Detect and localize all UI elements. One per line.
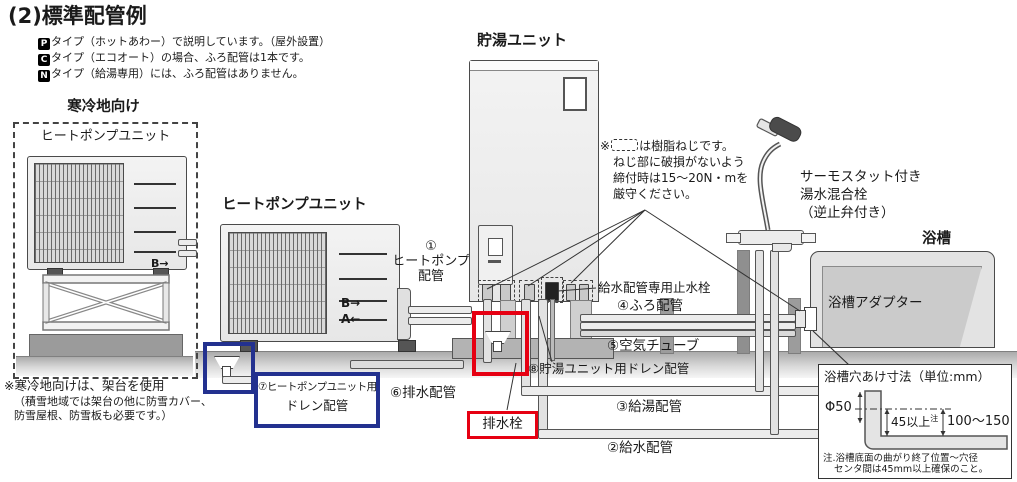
vent-slit <box>134 251 176 253</box>
pipe2-label: ②給水配管 <box>607 441 673 457</box>
pipe6-label: ⑥排水配管 <box>390 386 456 402</box>
cold-pipe-a <box>178 250 197 257</box>
unit-foot <box>398 340 416 352</box>
highlight-pipe7-blue-box: ⑦ヒートポンプユニット用 ドレン配管 <box>254 372 380 428</box>
mixer-label-line1: サーモスタット付き <box>800 170 922 186</box>
bathtub-title: 浴槽 <box>922 231 951 248</box>
mixer-knob-right <box>801 233 816 243</box>
resin-note-line4: 厳守ください。 <box>600 186 748 202</box>
mixer-hot-riser <box>755 250 764 392</box>
tank-drain-hose <box>550 299 555 361</box>
pipe8-label: ⑧貯湯ユニット用ドレン配管 <box>528 362 689 376</box>
type-note-n: Nタイプ（給湯専用）には、ふろ配管はありません。 <box>38 66 330 82</box>
heatpump-pipe-upper <box>408 306 472 314</box>
dim-100-150-label: 100～150 <box>947 415 1010 430</box>
drain-plug-label: 排水栓 <box>470 417 535 433</box>
pipe3-label: ③給湯配管 <box>616 400 682 416</box>
tank-top-band <box>470 61 598 71</box>
n-type-badge: N <box>38 70 50 82</box>
cold-region-box: ヒートポンプユニット B→ A← <box>13 122 198 379</box>
port-b-label: B→ <box>341 297 360 311</box>
vent-slit <box>339 253 387 255</box>
resin-note: ※は樹脂ねじです。 ねじ部に破損がないよう 締付時は15～20N・mを 厳守くだ… <box>600 138 748 202</box>
cold-note-1: ※寒冷地向けは、架台を使用 <box>4 379 164 393</box>
type-note-p: Pタイプ（ホットあわー）で説明しています。（屋外設置） <box>38 34 330 50</box>
pipe5-label: ⑤空気チューブ <box>607 339 699 355</box>
drain-pipe-6 <box>350 360 464 369</box>
tank-vent <box>563 77 587 111</box>
hole-dimension-box: 浴槽穴あけ寸法（単位:mm） Φ50 45以上注 100～150 注.浴槽底面の… <box>818 364 1012 479</box>
mixer-post <box>737 250 750 354</box>
resin-screw-box <box>563 280 593 302</box>
cold-unit-label: ヒートポンプユニット <box>15 130 196 145</box>
heatpump-pipe-lower <box>408 317 472 325</box>
highlight-drain-plug-red-box: 排水栓 <box>467 411 538 439</box>
pipe7-label-line1: ⑦ヒートポンプユニット用 <box>258 381 376 393</box>
vent-slit <box>134 231 176 233</box>
tank-control-panel <box>478 225 513 285</box>
type-note-c: Cタイプ（エコオート）の場合、ふろ配管は1本です。 <box>38 50 330 66</box>
resin-note-line3: 締付時は15～20N・mを <box>600 170 748 186</box>
panel-slot <box>488 260 501 263</box>
vent-slit <box>134 183 176 185</box>
panel-screen <box>488 238 503 256</box>
highlight-drain-area-red-box <box>472 311 529 376</box>
mixer-cold-riser <box>770 250 779 435</box>
highlight-drain-funnel-blue-box <box>203 342 255 394</box>
type-notes: Pタイプ（ホットあわー）で説明しています。（屋外設置） Cタイプ（エコオート）の… <box>38 34 330 82</box>
cold-unit-base <box>29 334 183 358</box>
bathtub-adapter-flange <box>795 310 806 328</box>
coldwater-pipe-2 <box>538 429 822 439</box>
vent-slit <box>339 278 387 280</box>
heatpump-grille <box>228 232 327 334</box>
shower-head <box>756 110 802 146</box>
mixer-label-line2: 湯水混合栓 <box>800 188 868 204</box>
cold-pipe-b <box>178 239 197 246</box>
pipe1-label: ① ヒートポンプ 配管 <box>392 240 470 285</box>
pipe7-label-line2: ドレン配管 <box>258 399 376 413</box>
mixer-spout <box>772 243 792 252</box>
pipe4-label: ④ふろ配管 <box>617 299 683 315</box>
bathtub: 浴槽アダプター <box>810 251 995 348</box>
piping-diagram: (2)標準配管例 Pタイプ（ホットあわー）で説明しています。（屋外設置） Cタイ… <box>0 0 1017 482</box>
vent-slit <box>134 207 176 209</box>
tank-body <box>469 60 599 302</box>
cold-region-title: 寒冷地向け <box>13 99 194 116</box>
cold-unit-stand <box>41 274 171 332</box>
heatpump-side-panel <box>397 288 411 340</box>
port-a-label: A← <box>341 313 360 327</box>
dashed-box-glyph <box>611 139 638 151</box>
tank-title: 貯湯ユニット <box>477 32 567 49</box>
mixer-label-line3: （逆止弁付き） <box>800 206 895 222</box>
mixer-knob-left <box>726 233 741 243</box>
mixing-valve <box>738 230 804 245</box>
stop-valve-label: 給水配管専用止水栓 <box>598 281 711 295</box>
c-type-badge: C <box>38 54 50 66</box>
dim-45-label: 45以上注 <box>891 414 938 430</box>
cold-note-2: （積雪地域では架台の他に防雪カバー、 <box>14 396 212 409</box>
cold-unit-grille <box>34 163 124 263</box>
heatpump-unit: B→ A← <box>220 224 400 342</box>
page-title: (2)標準配管例 <box>8 4 147 28</box>
cold-ground <box>16 356 193 376</box>
bathtub-adapter-label: 浴槽アダプター <box>828 296 923 312</box>
resin-note-line1: ※は樹脂ねじです。 <box>600 138 748 154</box>
dim-note-2: センタ間は45mm以上確保のこと。 <box>834 465 988 476</box>
resin-note-line2: ねじ部に破損がないよう <box>600 154 748 170</box>
cold-note-3: 防雪屋根、防雪板も必要です。） <box>14 410 172 423</box>
p-type-badge: P <box>38 38 50 50</box>
cold-heatpump-unit: B→ A← <box>27 156 187 270</box>
heatpump-title: ヒートポンプユニット <box>222 197 367 214</box>
